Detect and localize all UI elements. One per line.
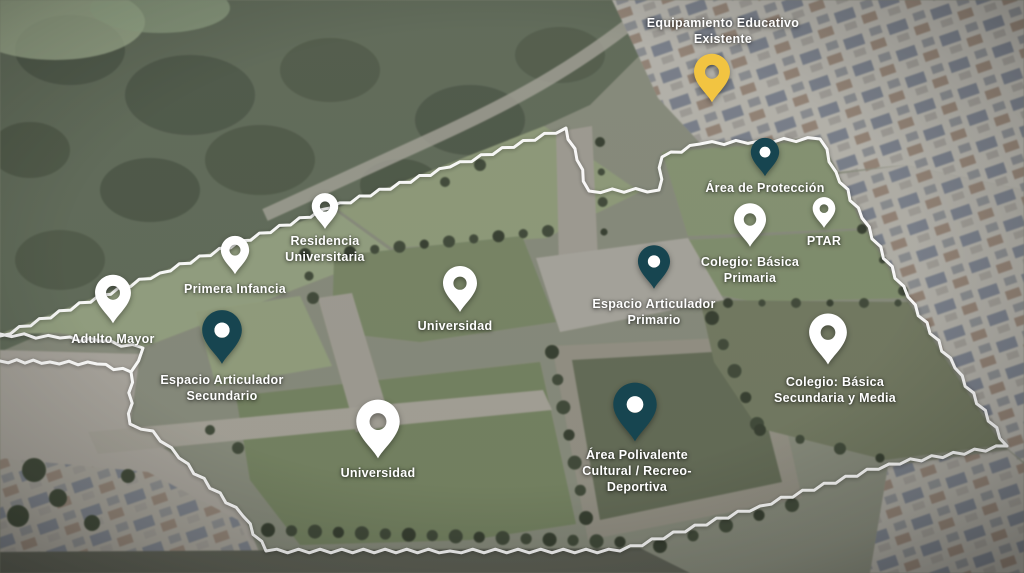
area-polivalente-label: Área PolivalenteCultural / Recreo-Deport… xyxy=(537,447,737,495)
area-polivalente-pin-icon xyxy=(612,381,658,443)
area-de-proteccion-pin-icon xyxy=(750,136,780,178)
primera-infancia-label: Primera Infancia xyxy=(135,281,335,297)
colegio-basica-secundaria-y-media-label: Colegio: BásicaSecundaria y Media xyxy=(735,374,935,406)
universidad-sur-label: Universidad xyxy=(278,465,478,481)
adulto-mayor-label: Adulto Mayor xyxy=(13,331,213,347)
espacio-articulador-secundario-pin-icon xyxy=(201,306,243,368)
ptar-label: PTAR xyxy=(724,233,924,249)
universidad-central-label: Universidad xyxy=(355,318,555,334)
equipamiento-educativo-existente-label: Equipamiento EducativoExistente xyxy=(623,15,823,47)
residencia-universitaria-pin-icon xyxy=(311,191,339,231)
universidad-sur-pin-icon xyxy=(355,397,401,461)
adulto-mayor-pin-icon xyxy=(94,270,132,328)
equipamiento-educativo-existente-pin-icon xyxy=(693,52,731,104)
universidad-central-pin-icon xyxy=(442,265,478,313)
ptar-pin-icon xyxy=(812,195,836,230)
residencia-universitaria-label: ResidenciaUniversitaria xyxy=(225,233,425,265)
area-de-proteccion-label: Área de Protección xyxy=(665,180,865,196)
masterplan-aerial-view: Adulto MayorPrimera InfanciaResidenciaUn… xyxy=(0,0,1024,573)
colegio-basica-primaria-label: Colegio: BásicaPrimaria xyxy=(650,254,850,286)
colegio-basica-secundaria-y-media-pin-icon xyxy=(808,309,848,369)
espacio-articulador-secundario-label: Espacio ArticuladorSecundario xyxy=(122,372,322,404)
espacio-articulador-primario-label: Espacio ArticuladorPrimario xyxy=(554,296,754,328)
